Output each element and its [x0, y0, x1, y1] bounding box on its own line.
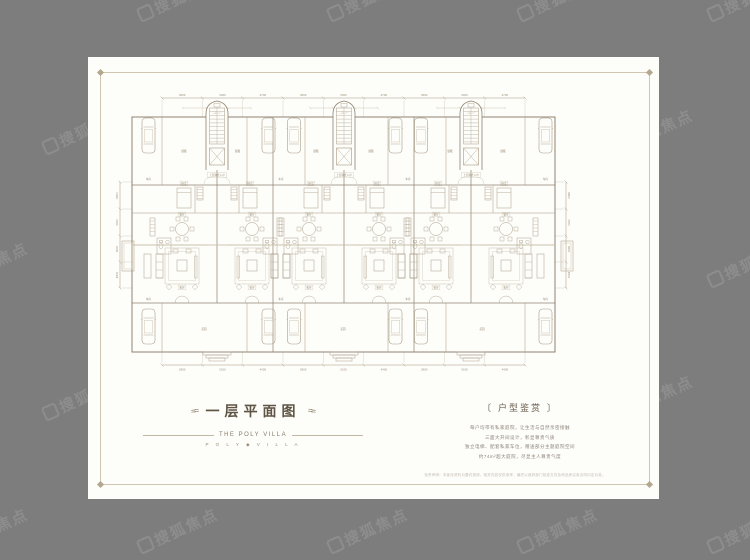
svg-text:车库: 车库 [146, 177, 152, 181]
sohu-focus-logo-icon [326, 535, 346, 555]
sohu-focus-logo-icon [41, 402, 61, 422]
svg-text:客厅: 客厅 [249, 286, 255, 290]
sohu-focus-watermark: 搜狐焦点 [514, 503, 601, 557]
info-line: 每户均带有私家庭院，让生活与自然亲密接触 [420, 423, 620, 433]
sohu-focus-logo-icon [136, 3, 156, 23]
svg-text:卧室: 卧室 [435, 182, 441, 186]
svg-text:4400: 4400 [381, 368, 388, 372]
svg-text:3600: 3600 [421, 93, 428, 97]
flourish-left-icon: ≈≈ [190, 405, 198, 416]
svg-text:餐厅: 餐厅 [433, 213, 439, 217]
flourish-right-icon: ≈≈ [309, 405, 317, 416]
svg-text:车库: 车库 [146, 297, 152, 301]
svg-text:6600: 6600 [567, 192, 571, 199]
svg-text:3900: 3900 [421, 368, 428, 372]
svg-text:3300: 3300 [115, 219, 119, 226]
svg-text:卧室: 卧室 [181, 182, 187, 186]
svg-text:车库: 车库 [278, 297, 284, 301]
svg-text:餐厅: 餐厅 [306, 213, 312, 217]
svg-text:客厅: 客厅 [179, 286, 185, 290]
svg-text:二层入户: 二层入户 [212, 111, 222, 115]
svg-text:上层复式入户: 上层复式入户 [463, 173, 479, 177]
svg-text:二层入户: 二层入户 [339, 111, 349, 115]
svg-text:花园: 花园 [340, 327, 346, 331]
info-block: 〔 户型鉴赏 〕 每户均带有私家庭院，让生活与自然亲密接触 三面大开间设计，彰显… [420, 401, 620, 461]
sohu-focus-logo-icon [41, 136, 61, 156]
sohu-focus-logo-icon [516, 3, 536, 23]
svg-text:餐厅: 餐厅 [376, 213, 382, 217]
sohu-focus-watermark: 搜狐焦点 [134, 503, 221, 557]
svg-text:3900: 3900 [300, 368, 307, 372]
svg-text:花园: 花园 [479, 327, 485, 331]
sohu-focus-watermark: 搜狐焦点 [324, 0, 411, 26]
svg-text:车库: 车库 [543, 177, 549, 181]
svg-text:客厅: 客厅 [376, 286, 382, 290]
floorplan-sheet: 3600390054005100470044003600390054005100… [88, 57, 659, 499]
svg-text:卧室: 卧室 [308, 182, 314, 186]
info-heading: 〔 户型鉴赏 〕 [420, 401, 620, 414]
svg-text:6600: 6600 [115, 192, 119, 199]
corner-ornament-icon [646, 481, 653, 488]
sohu-focus-watermark: 搜狐焦点 [704, 237, 750, 291]
svg-text:上层复式入户: 上层复式入户 [336, 173, 352, 177]
info-line: 三面大开间设计，彰显尊贵气质 [420, 433, 620, 443]
svg-text:餐厅: 餐厅 [179, 213, 185, 217]
svg-text:5100: 5100 [461, 368, 468, 372]
sohu-focus-watermark: 搜狐焦点 [324, 503, 411, 557]
svg-text:储藏: 储藏 [313, 149, 319, 153]
svg-text:客厅: 客厅 [306, 286, 312, 290]
svg-text:3600: 3600 [115, 245, 119, 252]
title-block: ≈≈ 一层平面图 ≈≈ THE POLY VILLA P O L Y ◆ V I… [143, 401, 363, 448]
floor-plan-area: 3600390054005100470044003600390054005100… [115, 88, 585, 378]
floor-plan-svg: 3600390054005100470044003600390054005100… [115, 88, 585, 378]
svg-text:储藏: 储藏 [500, 149, 506, 153]
svg-text:4800: 4800 [115, 271, 119, 278]
sohu-focus-logo-icon [706, 269, 726, 289]
svg-text:4400: 4400 [502, 368, 509, 372]
brand-divider: THE POLY VILLA [143, 432, 363, 438]
brand-name: THE POLY VILLA [219, 432, 287, 438]
svg-text:储藏: 储藏 [447, 149, 453, 153]
svg-text:3300: 3300 [567, 219, 571, 226]
svg-text:3600: 3600 [179, 93, 186, 97]
sohu-focus-logo-icon [136, 535, 156, 555]
svg-text:上层复式入户: 上层复式入户 [209, 173, 225, 177]
svg-text:车库: 车库 [278, 177, 284, 181]
svg-text:客厅: 客厅 [503, 286, 509, 290]
sohu-focus-watermark: 搜狐焦点 [134, 0, 221, 26]
brand-tagline: P O L Y ◆ V I L L A [143, 442, 363, 448]
svg-text:5400: 5400 [461, 93, 468, 97]
svg-text:4700: 4700 [260, 93, 267, 97]
svg-text:3600: 3600 [300, 93, 307, 97]
plan-title: 一层平面图 [206, 401, 301, 421]
svg-text:车库: 车库 [543, 297, 549, 301]
svg-text:储藏: 储藏 [368, 149, 374, 153]
svg-text:客厅: 客厅 [433, 286, 439, 290]
sohu-focus-logo-icon [516, 535, 536, 555]
svg-text:花园: 花园 [201, 327, 207, 331]
svg-text:4700: 4700 [381, 93, 388, 97]
sohu-focus-logo-icon [326, 3, 346, 23]
svg-text:4700: 4700 [502, 93, 509, 97]
svg-text:3600: 3600 [567, 246, 571, 253]
svg-text:5100: 5100 [340, 368, 347, 372]
svg-text:卧室: 卧室 [247, 182, 253, 186]
sohu-focus-watermark: 搜狐焦点 [0, 237, 32, 291]
svg-text:车库: 车库 [405, 297, 411, 301]
sohu-focus-watermark: 搜狐焦点 [0, 503, 32, 557]
svg-text:储藏: 储藏 [181, 149, 187, 153]
disclaimer-text: 免责声明：本宣传资料为要约邀请，相关内容仅供参考，最终以政府部门批准文件及商品房… [390, 473, 640, 478]
info-line: 独立电梯、配套私家车位，赠送部分主题庭院空间 [420, 442, 620, 452]
svg-text:4400: 4400 [260, 368, 267, 372]
sohu-focus-watermark: 搜狐焦点 [704, 503, 750, 557]
svg-text:3900: 3900 [179, 368, 186, 372]
sohu-focus-watermark: 搜狐焦点 [704, 0, 750, 26]
svg-text:餐厅: 餐厅 [503, 213, 509, 217]
svg-text:餐厅: 餐厅 [249, 213, 255, 217]
sohu-focus-logo-icon [706, 535, 726, 555]
svg-text:5400: 5400 [340, 93, 347, 97]
svg-text:卧室: 卧室 [374, 182, 380, 186]
sohu-focus-watermark: 搜狐焦点 [514, 0, 601, 26]
svg-text:4800: 4800 [567, 272, 571, 279]
info-text: 每户均带有私家庭院，让生活与自然亲密接触 三面大开间设计，彰显尊贵气质 独立电梯… [420, 423, 620, 461]
svg-text:二层入户: 二层入户 [466, 111, 476, 115]
svg-text:车库: 车库 [405, 177, 411, 181]
svg-text:5100: 5100 [219, 368, 226, 372]
info-line: 约74m²超大庭院，尽显主人尊贵气度 [420, 452, 620, 462]
screenshot-stage: 搜狐焦点搜狐焦点搜狐焦点搜狐焦点搜狐焦点搜狐焦点搜狐焦点搜狐焦点搜狐焦点搜狐焦点… [0, 0, 750, 560]
svg-text:储藏: 储藏 [235, 149, 241, 153]
svg-text:卧室: 卧室 [501, 182, 507, 186]
svg-text:5400: 5400 [219, 93, 226, 97]
sohu-focus-logo-icon [706, 3, 726, 23]
sohu-focus-watermark: 搜狐焦点 [0, 0, 32, 26]
